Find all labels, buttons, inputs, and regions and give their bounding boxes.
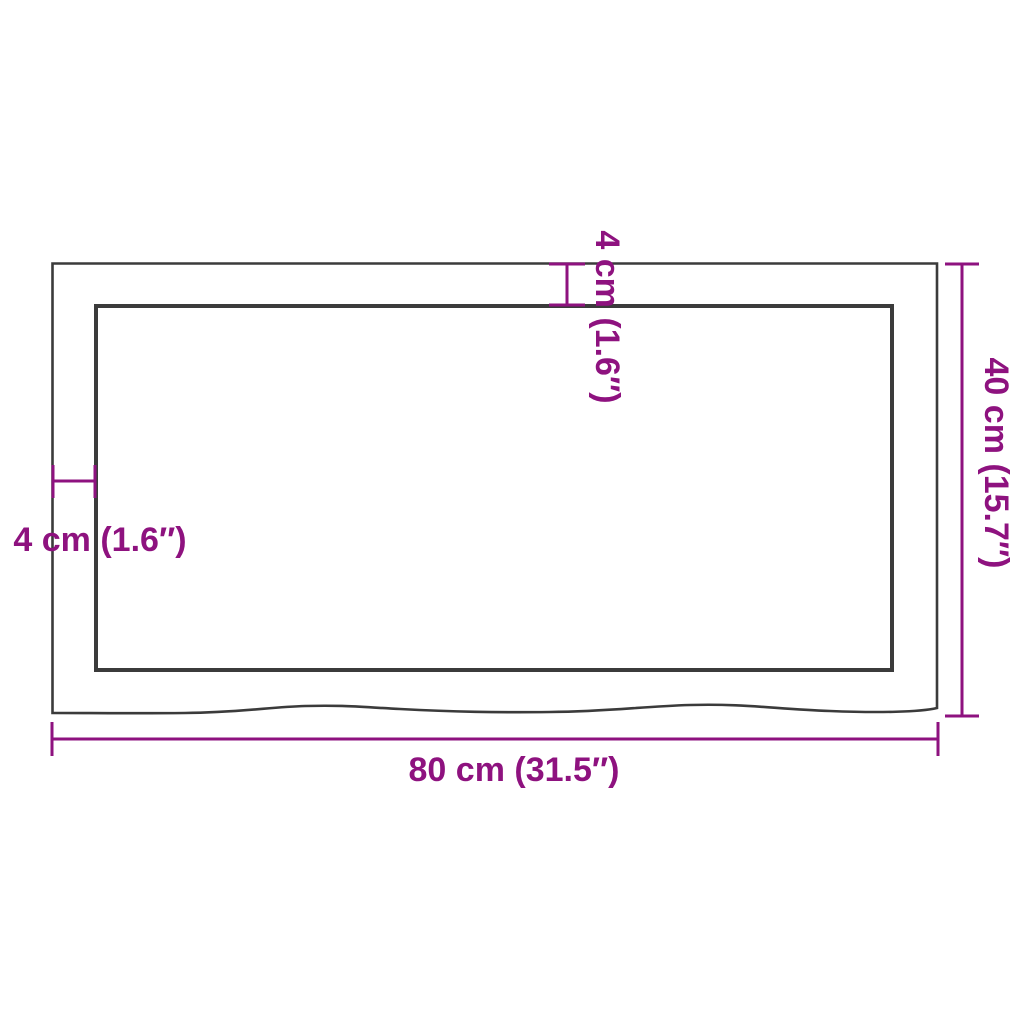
width-dimension-label: 80 cm (31.5″) [409, 751, 620, 789]
left-thickness-dimension-label: 4 cm (1.6″) [13, 521, 186, 559]
panel-outlines [53, 264, 938, 714]
panel-outer-outline [53, 264, 938, 714]
dimension-diagram-canvas: 80 cm (31.5″) 40 cm (15.7″) 4 cm (1.6″) … [0, 0, 1024, 1024]
dimension-lines [52, 264, 979, 756]
dimension-labels: 80 cm (31.5″) 40 cm (15.7″) 4 cm (1.6″) … [13, 230, 1015, 789]
dimension-diagram: 80 cm (31.5″) 40 cm (15.7″) 4 cm (1.6″) … [0, 0, 1024, 1024]
height-dimension-label: 40 cm (15.7″) [977, 358, 1015, 569]
panel-inner-outline [96, 306, 892, 670]
top-thickness-dimension-line [549, 264, 585, 305]
top-thickness-dimension-label: 4 cm (1.6″) [588, 230, 626, 403]
height-dimension-line [945, 264, 979, 716]
left-thickness-dimension-line [53, 465, 95, 498]
